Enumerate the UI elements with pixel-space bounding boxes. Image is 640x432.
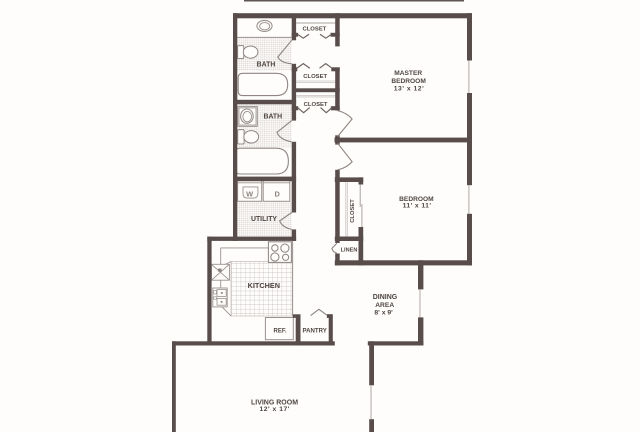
svg-text:REF.: REF.	[273, 328, 286, 334]
svg-text:CLOSET: CLOSET	[350, 199, 356, 223]
svg-text:W: W	[246, 189, 253, 198]
svg-text:BATH: BATH	[257, 61, 276, 68]
svg-text:MASTER: MASTER	[394, 70, 422, 77]
svg-text:8' x 9': 8' x 9'	[374, 310, 393, 317]
svg-text:12' x 17': 12' x 17'	[259, 406, 289, 413]
svg-text:BEDROOM: BEDROOM	[391, 78, 426, 85]
svg-text:DINING: DINING	[373, 294, 398, 301]
svg-text:AREA: AREA	[375, 302, 394, 309]
svg-text:PANTRY: PANTRY	[303, 327, 327, 334]
svg-text:CLOSET: CLOSET	[303, 74, 327, 80]
svg-text:CLOSET: CLOSET	[302, 27, 326, 33]
svg-text:UTILITY: UTILITY	[251, 216, 277, 223]
svg-text:13' x 12': 13' x 12'	[394, 85, 424, 92]
svg-text:CLOSET: CLOSET	[304, 102, 328, 108]
svg-text:LINEN: LINEN	[341, 248, 358, 254]
svg-text:BATH: BATH	[263, 114, 282, 121]
svg-text:11' x 11': 11' x 11'	[403, 203, 432, 210]
svg-text:KITCHEN: KITCHEN	[248, 281, 280, 290]
svg-text:D: D	[275, 189, 281, 198]
